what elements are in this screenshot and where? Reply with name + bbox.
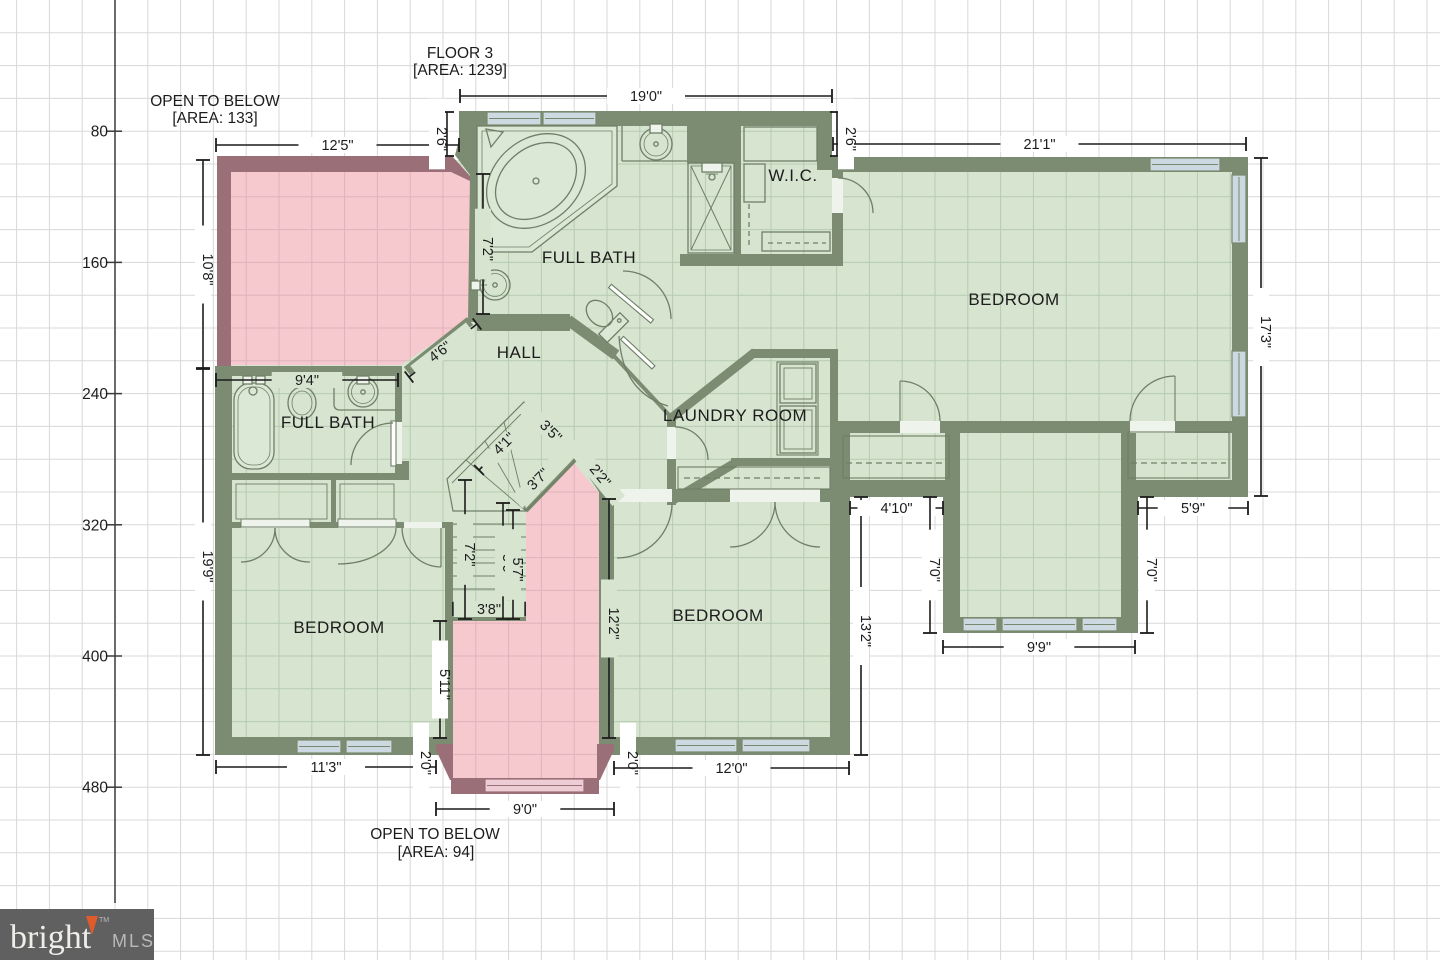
svg-text:12'0": 12'0" [715,761,747,777]
svg-text:21'1": 21'1" [1023,137,1055,153]
svg-text:[AREA: 133]: [AREA: 133] [172,110,257,127]
svg-text:480: 480 [82,780,108,797]
svg-text:2'6": 2'6" [433,127,449,151]
svg-text:3'8": 3'8" [477,602,501,618]
svg-text:LAUNDRY ROOM: LAUNDRY ROOM [663,406,807,425]
svg-text:17'3": 17'3" [1257,316,1273,348]
svg-text:11'3": 11'3" [310,760,341,776]
svg-text:2'0": 2'0" [624,751,640,775]
svg-text:12'5": 12'5" [321,138,353,154]
svg-text:320: 320 [82,517,108,534]
svg-text:BEDROOM: BEDROOM [293,618,384,637]
svg-text:10'8": 10'8" [199,253,215,285]
svg-text:12'2": 12'2" [605,607,621,639]
svg-text:9'9": 9'9" [1027,640,1051,656]
svg-text:HALL: HALL [497,343,542,362]
svg-text:19'0": 19'0" [630,89,662,105]
svg-text:W.I.C.: W.I.C. [768,166,817,185]
svg-text:5'7": 5'7" [509,557,525,581]
svg-text:OPEN TO BELOW: OPEN TO BELOW [150,93,280,110]
svg-text:7'0": 7'0" [926,558,942,582]
svg-text:2'6": 2'6" [842,127,858,151]
svg-text:bright: bright [10,919,92,956]
svg-text:19'9": 19'9" [199,550,215,582]
svg-text:9'4": 9'4" [295,373,319,389]
svg-text:7'0": 7'0" [1143,558,1159,582]
svg-text:5'9": 5'9" [1181,501,1205,517]
svg-text:4'10": 4'10" [880,501,912,517]
svg-text:80: 80 [91,124,109,141]
svg-text:160: 160 [82,255,108,272]
svg-text:13'2": 13'2" [857,615,873,647]
svg-text:OPEN TO BELOW: OPEN TO BELOW [370,826,500,843]
svg-text:FULL BATH: FULL BATH [542,248,636,267]
svg-text:2'0": 2'0" [417,751,433,775]
svg-text:7'2": 7'2" [479,237,495,261]
svg-text:BEDROOM: BEDROOM [968,290,1059,309]
svg-text:BEDROOM: BEDROOM [672,606,763,625]
svg-text:TM: TM [99,917,109,924]
svg-text:[AREA: 1239]: [AREA: 1239] [413,62,507,79]
svg-text:MLS: MLS [112,931,155,951]
svg-text:240: 240 [82,386,108,403]
svg-text:[AREA: 94]: [AREA: 94] [398,844,475,861]
svg-text:5'11": 5'11" [436,669,452,700]
svg-text:400: 400 [82,649,108,666]
svg-text:9'0": 9'0" [513,802,537,818]
svg-text:7'2": 7'2" [461,542,477,566]
svg-text:FULL BATH: FULL BATH [281,413,375,432]
svg-text:FLOOR 3: FLOOR 3 [427,45,493,62]
